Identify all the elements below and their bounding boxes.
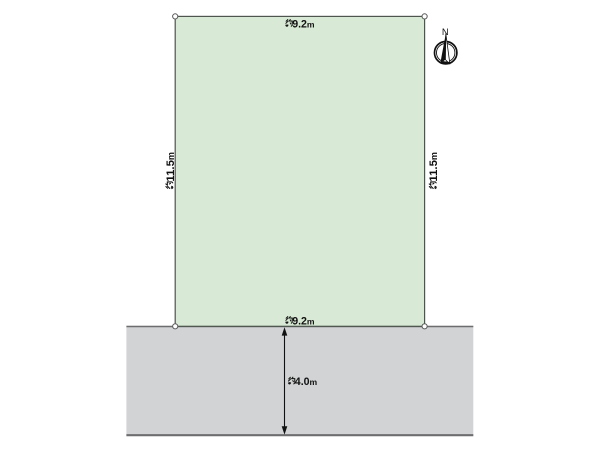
svg-text:9.2m: 9.2m: [292, 18, 315, 30]
svg-text:11.5m: 11.5m: [428, 152, 440, 182]
svg-text:9.2m: 9.2m: [292, 315, 315, 327]
svg-text:11.5m: 11.5m: [165, 152, 177, 182]
svg-text:4.0m: 4.0m: [295, 376, 318, 388]
svg-text:N: N: [442, 26, 449, 37]
